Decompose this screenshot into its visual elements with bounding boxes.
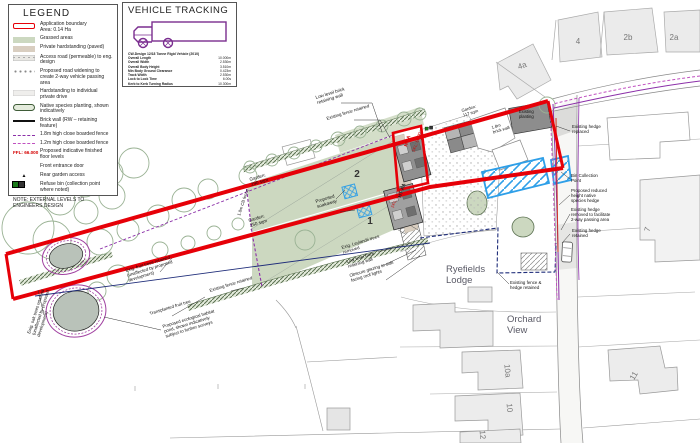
legend-item-bin: Refuse bin (collection point where noted… <box>13 182 113 194</box>
legend-item-fence12: 1.2m high close boarded fence <box>13 141 113 147</box>
legend-item-grass: Grassed areas <box>13 36 113 43</box>
legend-item-fence18: 1.8m high close boarded fence <box>13 132 113 138</box>
label-ryefields-lodge: RyefieldsLodge <box>446 264 485 286</box>
label-transplanted-fruit-tree: Transplanted fruit tree <box>149 299 192 316</box>
label-existing-hedge-retained: Existing hedgeretained <box>572 228 601 238</box>
rear-swatch <box>13 173 35 179</box>
label-habitat-pond: Proposed ecological habitatpond, shown i… <box>162 308 219 338</box>
label-parcel-12: 12 <box>478 430 488 440</box>
legend-item-wall: Brick wall (RW – retaining feature) <box>13 118 113 130</box>
vehicle-spec-name: Kerb to Kerb Turning Radius <box>128 82 173 86</box>
legend-item-label: Brick wall (RW – retaining feature) <box>40 118 113 130</box>
label-existing-fence-retained-n: Existing fence retained <box>326 103 370 121</box>
widening-swatch <box>13 69 35 75</box>
legend-item-ffl: FFL: 66.000Proposed indicative finished … <box>13 149 113 161</box>
label-parcel-2b: 2b <box>624 33 633 42</box>
legend-panel: LEGEND Application boundary Area: 0.14 H… <box>8 4 118 196</box>
label-parcel-10: 10 <box>505 403 515 413</box>
door-swatch <box>13 164 35 170</box>
paved-swatch <box>13 46 35 52</box>
house-7 <box>640 175 700 262</box>
label-garden-117: Garden:117 sqm <box>461 103 479 117</box>
vehicle-specs: Overall Length10.000mOverall Width2.530m… <box>128 56 231 86</box>
parcel-4a-outline <box>497 44 551 99</box>
legend-item-drive: Hardstanding to individual private drive <box>13 89 113 101</box>
label-plot-2: 2 <box>354 169 360 180</box>
truck-diagram <box>128 17 231 51</box>
label-existing-hedge-replaced: Existing hedgereplaced <box>572 124 601 134</box>
legend-item-label: Native species planting, shown indicativ… <box>40 104 113 116</box>
vehicle-tracking-title: VEHICLE TRACKING <box>128 5 231 16</box>
legend-item-boundary: Application boundary Area: 0.14 Ha <box>13 22 113 34</box>
legend-item-label: Proposed road widening to create 2-way v… <box>40 69 113 87</box>
house-11 <box>608 346 678 394</box>
legend-item-label: Access road (permeable) to eng. design <box>40 55 113 67</box>
ryefields-garage <box>521 253 547 270</box>
label-bin-collection-point: Bin CollectionPoint <box>571 173 598 183</box>
ryefields-outbuilding <box>468 287 492 302</box>
parcel-2b-outline <box>604 8 658 55</box>
legend-item-door: Front entrance door <box>13 164 113 171</box>
wall-swatch <box>13 120 35 123</box>
legend-item-label: Proposed indicative finished floor level… <box>40 149 113 161</box>
legend-item-label: Hardstanding to individual private drive <box>40 89 113 101</box>
label-parcel-2a: 2a <box>670 33 679 42</box>
legend-item-label: Grassed areas <box>40 36 73 42</box>
label-hedge-removed-passing: Existing hedgeremoved to facilitate2-way… <box>571 207 611 222</box>
house-ne <box>607 112 690 160</box>
vehicle-spec-row: Kerb to Kerb Turning Radius10.300m <box>128 82 231 86</box>
label-fence-18-cb: 1.8m CB fence <box>236 188 250 217</box>
field-shed <box>327 408 350 430</box>
vehicle-tracking-panel: VEHICLE TRACKING CW-Design 12/18 Tonne R… <box>122 2 237 87</box>
label-plot-1: 1 <box>367 216 373 227</box>
legend-item-label: Refuse bin (collection point where noted… <box>40 182 113 194</box>
parcel-2a-outline <box>664 10 700 52</box>
label-reduced-height-hedge: Proposed reducedheight nativespecies hed… <box>571 188 607 203</box>
legend-item-label: 1.2m high close boarded fence <box>40 141 108 147</box>
label-existing-planting: Existingplanting <box>519 109 534 119</box>
legend-item-label: Front entrance door <box>40 164 84 170</box>
legend-item-label: 1.8m high close boarded fence <box>40 132 108 138</box>
car-symbol <box>562 242 573 262</box>
planting-swatch <box>13 104 35 111</box>
legend-item-widening: Proposed road widening to create 2-way v… <box>13 69 113 87</box>
drive-swatch <box>13 90 35 96</box>
bin-swatch <box>13 182 35 188</box>
legend-item-label: Rear garden access <box>40 173 85 179</box>
legend-title: LEGEND <box>23 8 113 19</box>
legend-items: Application boundary Area: 0.14 HaGrasse… <box>13 22 113 194</box>
label-parcel-10a: 10a <box>502 364 512 379</box>
access-swatch <box>13 55 35 61</box>
legend-item-label: Application boundary Area: 0.14 Ha <box>40 22 87 34</box>
vehicle-spec-value: 10.300m <box>218 82 231 86</box>
grass-swatch <box>13 37 35 43</box>
label-orchard-view: OrchardView <box>507 314 541 336</box>
legend-item-label: Private hardstanding (paved) <box>40 45 104 51</box>
fence18-swatch <box>13 135 35 136</box>
fence12-swatch <box>13 143 35 144</box>
truck-icon <box>128 17 232 51</box>
label-low-level-brick-wall-n: Low level brickretaining wall <box>315 86 347 105</box>
label-parcel-4: 4 <box>576 37 581 46</box>
label-existing-fence-hedge-retained: Existing fence &hedge retained <box>510 280 542 290</box>
house-10a <box>462 350 523 390</box>
legend-item-paved: Private hardstanding (paved) <box>13 45 113 52</box>
legend-item-planting: Native species planting, shown indicativ… <box>13 104 113 116</box>
legend-item-rear: Rear garden access <box>13 173 113 180</box>
site-plan-drawing: Low level brickretaining wallExisting fe… <box>0 0 700 443</box>
legend-note: NOTE: EXTERNAL LEVELS TO ENGINEERS DESIG… <box>13 197 113 209</box>
legend-item-access: Access road (permeable) to eng. design <box>13 55 113 67</box>
boundary-swatch <box>13 23 35 29</box>
ffl-swatch: FFL: 66.000 <box>13 150 35 155</box>
ryefields-lodge-house <box>413 303 493 348</box>
